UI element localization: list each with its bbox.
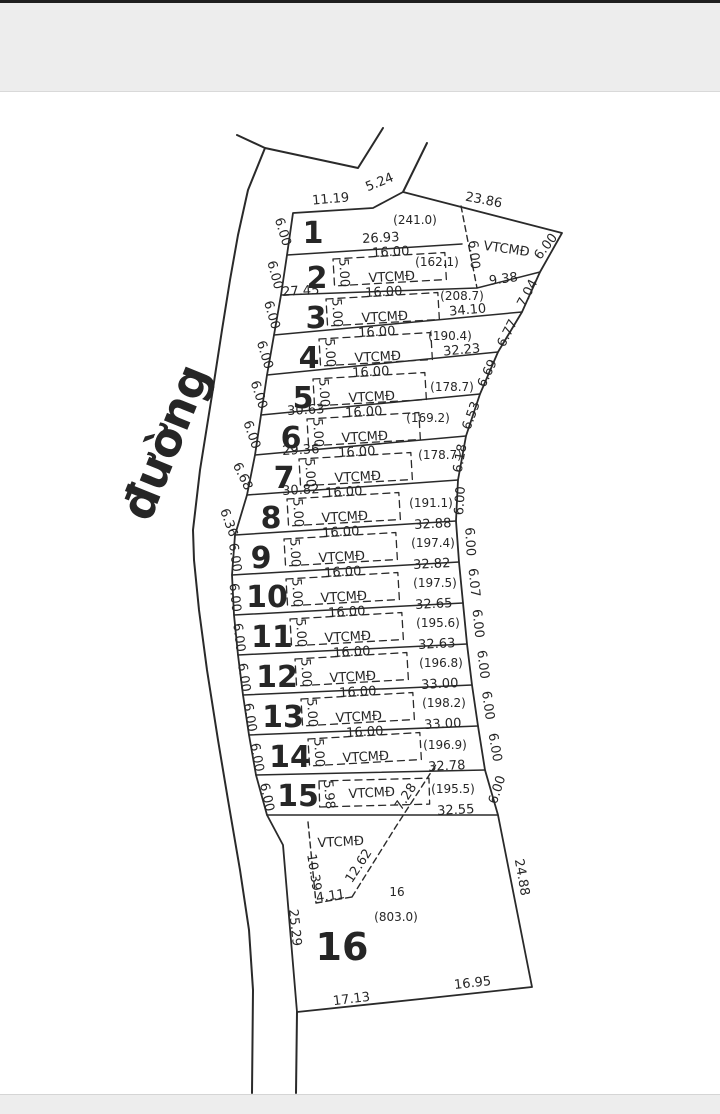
dim-label: 5.98	[320, 780, 337, 810]
dim-label: 5.00	[310, 738, 326, 768]
top-boundary-zigzag-a	[265, 128, 383, 168]
dim-label: 5.00	[289, 498, 305, 528]
dim-label: 16.00	[339, 684, 377, 701]
dim-label: 5.00	[288, 578, 304, 608]
dim-label: 6.00	[271, 216, 294, 248]
dim-label: 6.68	[229, 460, 255, 493]
lot-9-area: (197.4)	[411, 536, 455, 550]
dim-label: 6.00	[473, 649, 491, 680]
dim-label: 6.00	[226, 582, 244, 612]
dim-label: VTCMĐ	[321, 509, 368, 526]
dim-label: 5.00	[292, 618, 308, 648]
dim-label: 32.82	[413, 556, 451, 573]
dim-label: 16.00	[346, 724, 384, 741]
dim-label: 29.36	[282, 442, 320, 459]
dim-label: 32.55	[437, 802, 475, 819]
dim-label: VTCMĐ	[342, 749, 389, 766]
dim-label: 11.19	[312, 190, 350, 208]
dim-label: 6.00	[486, 774, 509, 806]
dim-label: 16.00	[328, 604, 366, 621]
dim-label: 16.00	[322, 524, 360, 541]
lot-number-11: 11	[251, 620, 293, 655]
dim-label: 16.00	[358, 324, 396, 341]
lot-number-12: 12	[256, 660, 298, 695]
dim-label: 16.95	[453, 974, 492, 993]
dim-label: 24.88	[511, 858, 532, 897]
dim-label: 9.38	[488, 270, 519, 289]
dim-label: 16.00	[324, 564, 362, 581]
dim-label: 6.00	[240, 702, 259, 733]
dim-label: 30.82	[282, 482, 320, 499]
lot-15-area: (195.5)	[431, 782, 475, 796]
lot-14-area: (196.9)	[423, 738, 467, 752]
dim-label: 34.10	[449, 301, 487, 319]
top-boundary-zigzag-b	[403, 143, 427, 192]
dim-label: 10.39	[303, 853, 324, 892]
dim-label: 6.00	[225, 542, 244, 573]
dim-label: 6.00	[256, 782, 277, 813]
lot-1-area: (241.0)	[393, 213, 437, 227]
dimension-labels: đường11.195.2423.86VTCMĐ6.006.009.387.04…	[110, 170, 561, 1009]
dim-label: 6.00	[452, 486, 469, 516]
lot-number-1: 1	[303, 216, 324, 251]
lot-6-area: (169.2)	[406, 411, 450, 425]
dim-label: 32.65	[415, 596, 453, 613]
lot-10-area: (197.5)	[413, 576, 457, 590]
lot-number-13: 13	[262, 700, 304, 735]
dim-label: 5.00	[297, 658, 313, 688]
dim-label: 5.00	[303, 698, 319, 728]
lot-7-area: (178.7)	[418, 448, 462, 462]
dim-label: 32.88	[414, 516, 452, 533]
dim-label: 6.00	[247, 742, 267, 773]
dim-label: 16.00	[325, 484, 363, 501]
dim-label: 5.00	[321, 338, 337, 368]
dim-label: 16.00	[352, 364, 390, 381]
dim-label: 16.00	[365, 284, 403, 301]
lot-number-8: 8	[261, 501, 282, 536]
lot-5-area: (178.7)	[430, 380, 474, 394]
survey-plan-svg: đường11.195.2423.86VTCMĐ6.006.009.387.04…	[0, 0, 720, 1114]
dim-label: 32.23	[443, 341, 481, 359]
dim-label: 5.00	[335, 258, 351, 288]
dim-label: 25.29	[285, 908, 304, 947]
dim-label: 6.77	[495, 317, 522, 350]
dim-label: 5.24	[363, 170, 395, 195]
dim-label: 33.00	[424, 716, 462, 733]
dim-label: VTCMĐ	[348, 785, 395, 802]
dim-label: 16.00	[333, 644, 371, 661]
dim-label: 7.28	[392, 781, 420, 813]
lot-16-area: (803.0)	[374, 910, 418, 924]
survey-plan-page: đường11.195.2423.86VTCMĐ6.006.009.387.04…	[0, 0, 720, 1114]
lot-13-area: (198.2)	[422, 696, 466, 710]
dim-label: 6.36	[216, 507, 240, 539]
lot-12-area: (196.8)	[419, 656, 463, 670]
vtcmd-wedge-label: VTCMĐ	[317, 834, 364, 851]
dim-label: 6.53	[460, 400, 484, 432]
dim-label: 6.00	[485, 732, 505, 763]
lot-8-area: (191.1)	[409, 496, 453, 510]
lot-11-area: (195.6)	[416, 616, 460, 630]
dim-label: 7.04	[514, 277, 541, 310]
lot-number-9: 9	[251, 541, 272, 576]
dim-label: 6.00	[469, 608, 487, 638]
lot-4-area: (190.4)	[428, 329, 472, 343]
dim-label: 6.00	[461, 527, 477, 557]
lot-3-area: (208.7)	[440, 289, 484, 303]
dim-label: 16.00	[372, 244, 410, 261]
dim-label: 6.00	[465, 240, 482, 270]
dim-label: VTCMĐ	[354, 349, 401, 366]
dim-label: 5.00	[286, 538, 302, 568]
dim-label: 23.86	[464, 190, 503, 212]
dim-label: 6.07	[465, 567, 483, 597]
dim-label: 32.78	[428, 758, 466, 775]
dim-label: 33.00	[421, 676, 459, 693]
dim-label: 6.69	[475, 357, 501, 390]
lot-2-area: (162.1)	[415, 255, 459, 269]
lot-number-14: 14	[269, 740, 311, 775]
lot-number-3: 3	[306, 301, 327, 336]
lot-number-16: 16	[316, 925, 369, 969]
lot-16-small-number: 16	[389, 885, 404, 899]
dim-label: 27.45	[282, 283, 320, 300]
lot-number-4: 4	[299, 341, 320, 376]
dim-label: 6.00	[531, 231, 561, 263]
dim-label: 17.13	[332, 990, 371, 1009]
vtcmd-triangle-label: VTCMĐ	[482, 239, 530, 260]
road-inner-edge	[296, 1012, 297, 1093]
dim-label: 16.00	[345, 404, 383, 421]
dim-label: 30.63	[287, 402, 325, 419]
dim-label: 6.00	[234, 662, 253, 693]
dim-label: 16.00	[338, 444, 376, 461]
lot-number-15: 15	[277, 779, 319, 814]
dim-label: 4.11	[315, 887, 346, 906]
dim-label: 32.63	[418, 636, 456, 653]
dim-label: 6.00	[478, 690, 497, 721]
dim-label: 5.00	[328, 298, 344, 328]
dim-label: 6.00	[229, 622, 247, 653]
lot-number-10: 10	[246, 580, 288, 615]
